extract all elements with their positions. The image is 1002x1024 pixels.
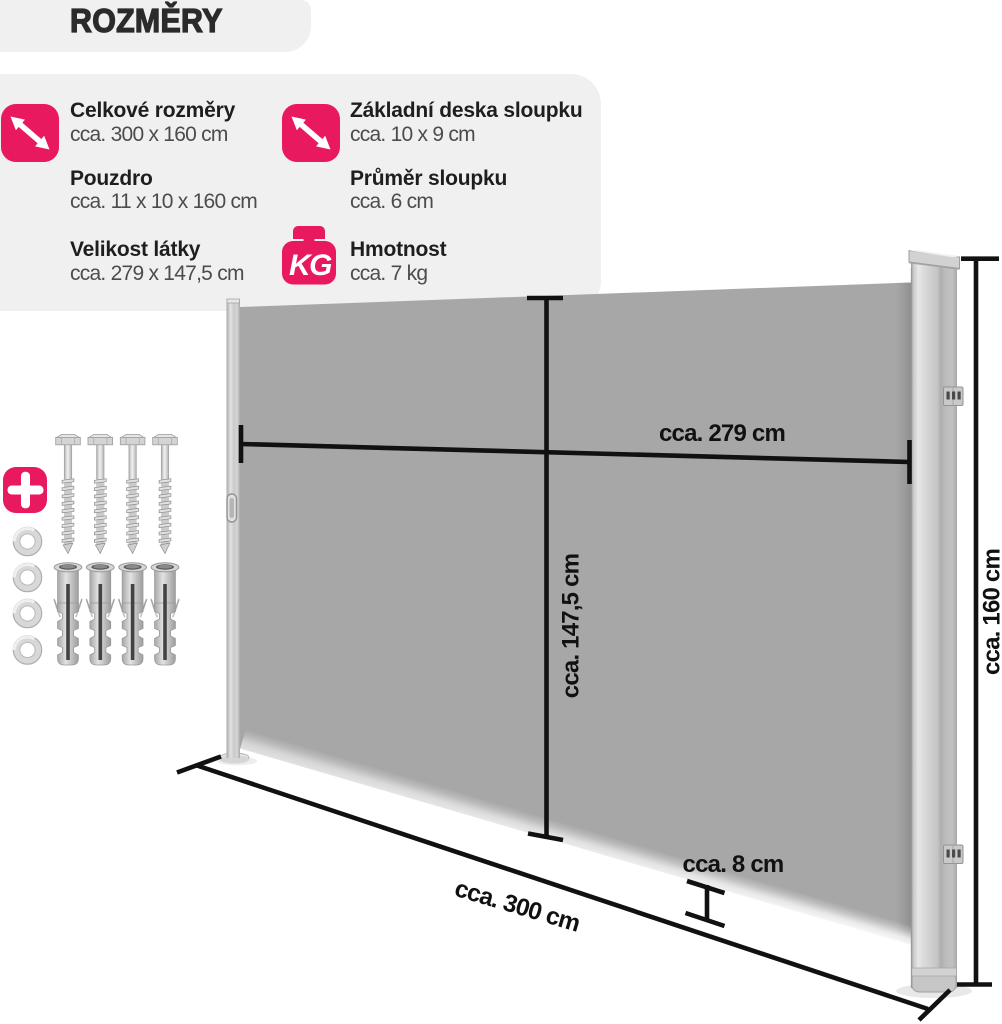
svg-text:cca. 279 cm: cca. 279 cm — [659, 420, 785, 447]
svg-text:cca. 160 cm: cca. 160 cm — [979, 549, 1002, 675]
svg-text:cca. 8 cm: cca. 8 cm — [683, 851, 784, 878]
svg-text:cca. 300 cm: cca. 300 cm — [452, 875, 583, 937]
svg-text:cca. 147,5 cm: cca. 147,5 cm — [558, 554, 585, 698]
